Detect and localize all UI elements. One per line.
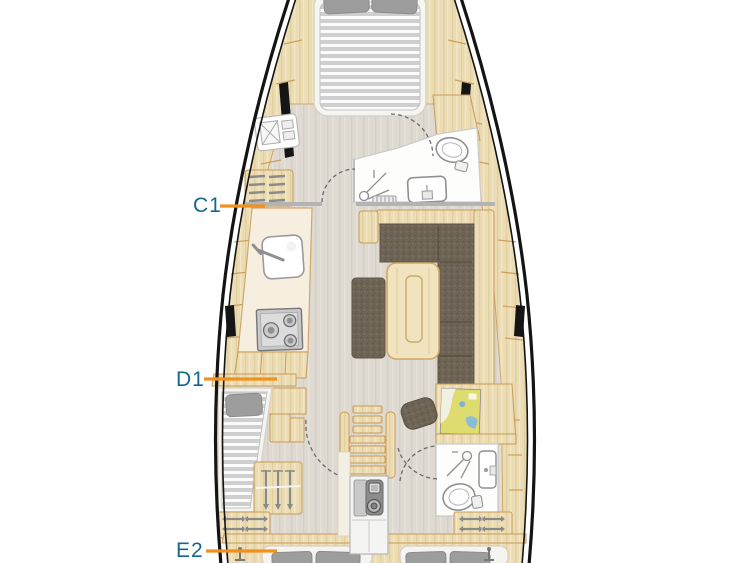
yacht-floorplan: C1 D1 E2 — [0, 0, 750, 563]
sofa-backrest-right — [474, 210, 494, 390]
salon-bench — [352, 278, 385, 358]
stove-icon — [256, 308, 302, 351]
cabin-wall-corner — [290, 418, 304, 442]
forward-vanity — [254, 113, 300, 151]
forward-hanging-locker — [245, 170, 293, 206]
aft-port-pillow — [225, 393, 262, 417]
sofa-backrest-top — [376, 210, 478, 224]
sofa-seat-top — [380, 224, 438, 262]
sink-icon — [407, 176, 446, 203]
aft-head-forward-wall — [436, 434, 516, 444]
sofa-seat-right — [438, 224, 474, 388]
forward-berth-mattress — [320, 2, 420, 110]
companionway-side-wall — [338, 452, 350, 536]
chart-map — [440, 388, 481, 434]
label-e2: E2 — [176, 539, 204, 562]
label-c1: C1 — [193, 194, 222, 217]
cabin-wall — [270, 414, 290, 442]
sink-icon-aft — [479, 451, 496, 488]
salon-side-seat — [359, 211, 378, 243]
salon-table — [387, 263, 439, 359]
label-d1: D1 — [176, 368, 205, 391]
aft-port-wardrobe — [254, 462, 302, 514]
